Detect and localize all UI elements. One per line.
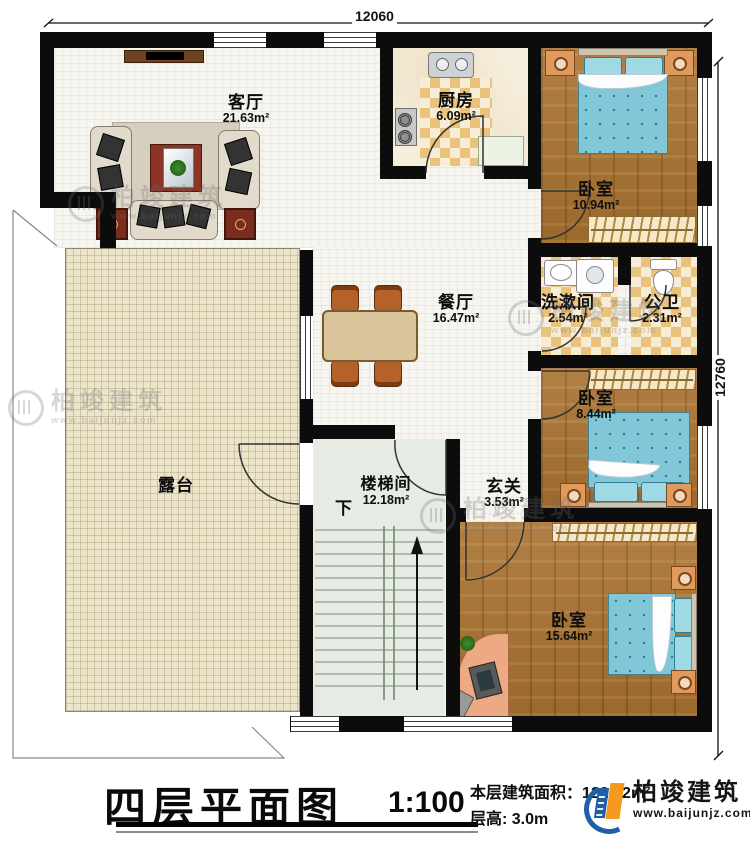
- window: [403, 716, 513, 732]
- wall: [541, 355, 712, 368]
- side-table: [224, 208, 256, 240]
- stair-direction-label: 下: [335, 500, 353, 518]
- wall: [380, 32, 393, 179]
- wall: [484, 166, 528, 179]
- basin-bowl: [550, 264, 572, 281]
- tv: [146, 52, 184, 60]
- wall: [528, 257, 541, 307]
- room-label-living: 客厅 21.63m²: [223, 94, 270, 125]
- brand-logo-icon: [584, 780, 630, 832]
- brand-name: 柏竣建筑: [633, 780, 750, 806]
- nightstand: [545, 50, 575, 76]
- wall: [446, 439, 460, 716]
- wall: [528, 243, 712, 257]
- wall: [380, 166, 426, 179]
- window: [300, 315, 313, 400]
- room-label-toilet: 公卫 2.31m²: [642, 294, 682, 325]
- wardrobe: [552, 523, 697, 542]
- wardrobe: [588, 369, 696, 390]
- room-label-bedroom2: 卧室 8.44m²: [576, 390, 616, 421]
- sink-basin: [436, 58, 449, 71]
- nightstand: [560, 483, 586, 507]
- bed-headboard: [578, 48, 668, 56]
- wall: [618, 257, 631, 285]
- plant: [170, 160, 186, 176]
- brand-url: www.baijunjz.com: [633, 806, 750, 820]
- room-label-stairwell: 楼梯间 12.18m²: [360, 477, 411, 507]
- room-label-washroom: 洗漱间 2.54m²: [541, 294, 595, 325]
- dining-chair: [331, 360, 359, 387]
- watermark-logo-icon: [8, 390, 44, 426]
- floor-plan: 12060 12760 客厅 21.63m² 厨房 6.09m² 卧室 10.9…: [0, 0, 750, 850]
- dining-chair: [331, 285, 359, 312]
- wall: [300, 250, 313, 315]
- cushion: [97, 164, 124, 191]
- cushion: [136, 204, 160, 228]
- kitchen-counter: [478, 136, 524, 166]
- dining-chair: [374, 285, 402, 312]
- wall: [300, 400, 313, 443]
- room-label-kitchen: 厨房 6.09m²: [436, 92, 476, 123]
- burner: [398, 113, 412, 127]
- window: [697, 77, 712, 162]
- dining-table: [322, 310, 418, 362]
- wall: [100, 208, 116, 248]
- dining-chair: [374, 360, 402, 387]
- room-label-foyer: 玄关 3.53m²: [484, 478, 524, 509]
- dimension-right-label: 12760: [712, 355, 728, 400]
- nightstand: [671, 670, 696, 694]
- window: [213, 32, 267, 48]
- nightstand: [671, 566, 696, 590]
- room-label-dining: 餐厅 16.47m²: [433, 294, 480, 325]
- window: [290, 716, 340, 732]
- cushion: [162, 205, 186, 229]
- wall: [40, 32, 54, 208]
- wall: [300, 425, 395, 439]
- toilet-tank: [650, 259, 677, 270]
- window: [697, 205, 712, 247]
- title-underline-thin: [116, 831, 478, 833]
- sink-basin: [455, 58, 468, 71]
- desk-plant: [460, 636, 475, 651]
- pillow: [594, 482, 638, 502]
- burner: [398, 130, 412, 144]
- room-label-bedroom1: 卧室 10.94m²: [573, 181, 620, 212]
- drawing-scale: 1:100: [388, 786, 465, 820]
- cushion: [225, 168, 252, 195]
- title-underline: [116, 822, 478, 827]
- room-label-terrace: 露台: [158, 477, 194, 495]
- wall: [300, 505, 313, 716]
- window: [323, 32, 377, 48]
- room-label-bedroom3: 卧室 15.64m²: [546, 612, 593, 643]
- window: [697, 425, 712, 510]
- wall: [528, 351, 541, 371]
- wardrobe: [588, 216, 696, 243]
- dimension-line-right: [714, 57, 723, 760]
- brand-logo: 柏竣建筑 www.baijunjz.com: [584, 780, 750, 832]
- nightstand: [666, 483, 692, 507]
- wall: [528, 419, 541, 522]
- nightstand: [664, 50, 694, 76]
- washer-drum: [586, 266, 604, 284]
- wall: [524, 508, 712, 522]
- wall: [528, 32, 541, 189]
- dimension-top-label: 12060: [352, 8, 397, 24]
- wall: [54, 192, 116, 208]
